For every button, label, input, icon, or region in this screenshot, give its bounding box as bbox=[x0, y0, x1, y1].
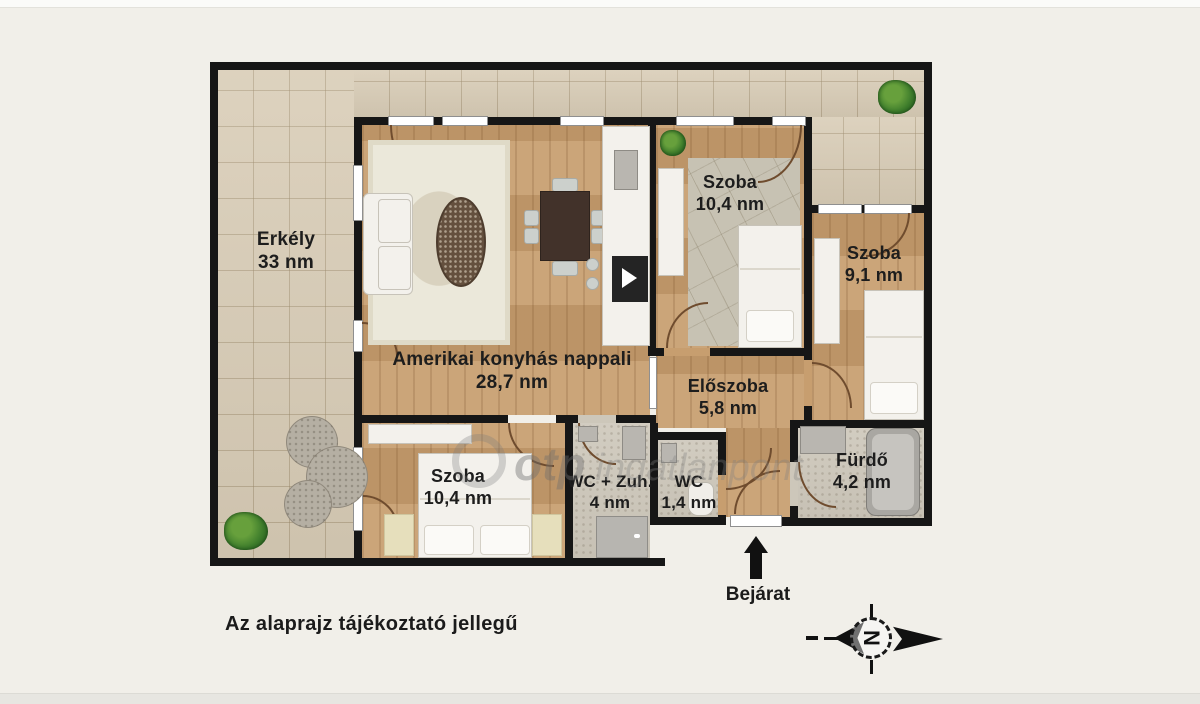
balcony-floor-top bbox=[354, 70, 924, 117]
entrance-arrow-shaft bbox=[750, 553, 762, 579]
opening-nappali-eloszoba bbox=[649, 357, 657, 409]
dining-chair bbox=[524, 228, 539, 244]
window bbox=[353, 165, 363, 221]
wall bbox=[210, 558, 665, 566]
window bbox=[818, 204, 862, 214]
wall bbox=[924, 62, 932, 526]
window bbox=[676, 116, 734, 126]
entrance-door bbox=[730, 515, 782, 527]
door-gap-wc-zuhany bbox=[578, 415, 616, 423]
wall bbox=[362, 415, 508, 423]
room-label-eloszoba: Előszoba5,8 nm bbox=[672, 376, 784, 420]
window bbox=[442, 116, 488, 126]
shower-drain bbox=[634, 534, 640, 538]
compass-dash bbox=[806, 636, 818, 640]
entrance-arrow-icon bbox=[744, 536, 768, 553]
plant bbox=[878, 80, 916, 114]
sofa-cushion bbox=[378, 246, 411, 290]
wall bbox=[658, 517, 726, 525]
wall bbox=[790, 518, 932, 526]
pillow bbox=[424, 525, 474, 555]
door-gap-szoba-jobb bbox=[804, 360, 812, 406]
compass-ring-icon: N bbox=[850, 617, 892, 659]
compass-tick-top bbox=[870, 604, 873, 618]
watermark-brand: otp bbox=[514, 438, 586, 490]
pebble-decor bbox=[284, 480, 332, 528]
wall bbox=[210, 62, 932, 70]
watermark-suffix: ingatlanpont bbox=[596, 447, 803, 489]
disclaimer-text: Az alaprajz tájékoztató jellegű bbox=[225, 613, 518, 636]
fridge-icon bbox=[622, 268, 637, 288]
bed-fold-line bbox=[740, 268, 800, 270]
plant bbox=[660, 130, 686, 156]
page-top-strip bbox=[0, 0, 1200, 8]
bedside-mat bbox=[384, 514, 414, 556]
dining-table bbox=[540, 191, 590, 261]
compass-tick-bottom bbox=[870, 660, 873, 674]
watermark-logo-icon bbox=[452, 434, 506, 488]
entrance-label: Bejárat bbox=[718, 584, 798, 606]
sofa-cushion bbox=[378, 199, 411, 243]
kitchen-stove bbox=[614, 150, 638, 190]
dining-chair bbox=[552, 261, 578, 276]
pillow bbox=[746, 310, 794, 342]
pillow bbox=[870, 382, 918, 414]
shower bbox=[596, 516, 648, 558]
floorplan-image: Erkély33 nm Amerikai konyhás nappali28,7… bbox=[0, 0, 1200, 704]
page-bottom-strip bbox=[0, 693, 1200, 704]
room-label-erkely: Erkély33 nm bbox=[226, 228, 346, 274]
coffee-table bbox=[436, 197, 486, 287]
compass-north-arrow-icon bbox=[893, 622, 943, 656]
balcony-floor-right bbox=[808, 117, 924, 205]
wall bbox=[210, 62, 218, 566]
window bbox=[560, 116, 604, 126]
room-label-szoba-jobb: Szoba9,1 nm bbox=[822, 243, 926, 287]
bed-fold-line bbox=[866, 336, 922, 338]
wall bbox=[782, 517, 792, 526]
door-gap-szoba-felso bbox=[664, 348, 710, 356]
compass-north-letter: N bbox=[853, 630, 889, 646]
bar-stool bbox=[586, 258, 599, 271]
dining-chair bbox=[524, 210, 539, 226]
room-label-nappali: Amerikai konyhás nappali28,7 nm bbox=[392, 348, 632, 394]
pillow bbox=[480, 525, 530, 555]
room-label-furdo: Fürdő4,2 nm bbox=[812, 450, 912, 494]
dining-chair bbox=[552, 178, 578, 192]
plant bbox=[224, 512, 268, 550]
bedside-mat bbox=[532, 514, 562, 556]
bar-stool bbox=[586, 277, 599, 290]
room-label-szoba-felso: Szoba10,4 nm bbox=[678, 172, 782, 216]
watermark: otpingatlanpont bbox=[452, 434, 803, 491]
